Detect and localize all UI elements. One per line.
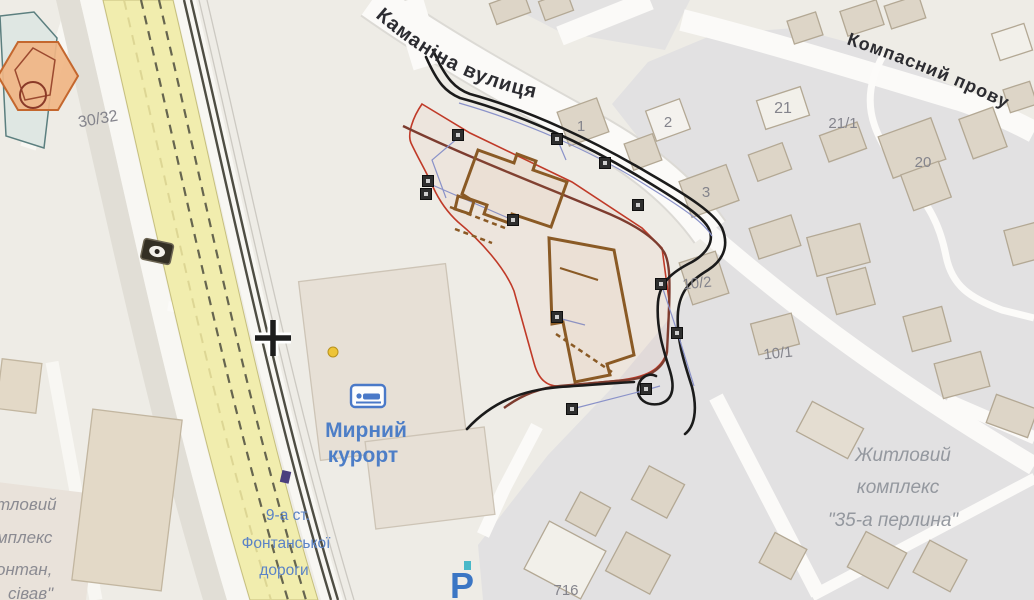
complex-pearl-line1: Житловий: [854, 445, 951, 466]
parcel-label-1: 1: [577, 118, 585, 135]
tram-stop-label-line1: 9-а ст.: [266, 507, 310, 524]
complex-left-line3: онтан,: [0, 560, 52, 579]
resort-label-line2: курорт: [328, 444, 398, 467]
map-canvas[interactable]: Каманіна вулиця Компасний прову 30/32 1 …: [0, 0, 1034, 600]
parcel-label-716: 716: [553, 582, 578, 599]
building-resort-annex: [365, 427, 495, 529]
parking-symbol: P: [450, 565, 474, 600]
parcel-label-21-1: 21/1: [828, 115, 857, 132]
yellow-dot-poi: [328, 347, 338, 357]
parcel-label-10-2: 10/2: [682, 274, 713, 294]
parcel-label-21: 21: [774, 100, 792, 117]
complex-pearl-line2: комплекс: [857, 477, 940, 498]
parcel-label-2: 2: [664, 114, 672, 131]
complex-left-line1: тловий: [0, 495, 57, 514]
parcel-label-3: 3: [702, 184, 710, 201]
building-left-2: [0, 359, 42, 414]
hotel-icon: [351, 385, 385, 407]
complex-left-line4: сівав": [8, 584, 54, 600]
parcel-label-10-1: 10/1: [763, 344, 794, 364]
complex-pearl-line3: "35-а перлина": [828, 510, 960, 531]
parcel-label-20: 20: [915, 154, 932, 171]
tram-stop-label-line2: Фонтанської: [242, 535, 331, 552]
complex-left-line2: мплекс: [0, 528, 53, 547]
tram-stop-label-line3: дороги: [259, 562, 308, 579]
resort-label-line1: Мирний: [325, 419, 407, 442]
